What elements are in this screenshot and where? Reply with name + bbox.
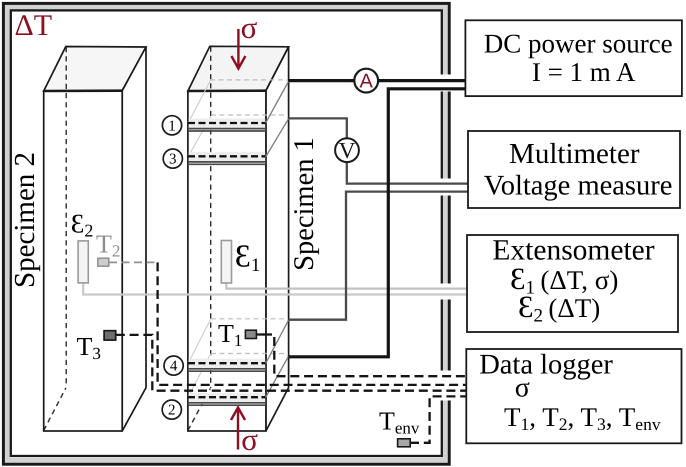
svg-text:2: 2 <box>168 403 176 419</box>
svg-text:Specimen 1: Specimen 1 <box>289 137 320 271</box>
svg-text:Tenv: Tenv <box>379 407 420 438</box>
svg-text:V: V <box>339 138 356 163</box>
svg-text:4: 4 <box>170 359 178 375</box>
svg-text:σ: σ <box>241 10 258 45</box>
svg-text:1: 1 <box>168 118 176 134</box>
svg-text:DC power source: DC power source <box>484 28 673 58</box>
svg-text:Multimeter: Multimeter <box>509 138 640 170</box>
svg-text:A: A <box>360 71 374 93</box>
svg-text:ΔT: ΔT <box>15 9 53 42</box>
svg-text:σ: σ <box>241 422 258 457</box>
svg-text:Voltage measure: Voltage measure <box>484 171 673 202</box>
svg-text:Specimen 2: Specimen 2 <box>9 152 41 288</box>
svg-text:Data logger: Data logger <box>479 350 613 381</box>
svg-text:3: 3 <box>169 152 177 168</box>
svg-text:I = 1 m A: I = 1 m A <box>532 57 636 87</box>
svg-text:Ɛ2 (ΔT): Ɛ2 (ΔT) <box>518 289 600 327</box>
svg-text:σ: σ <box>515 372 530 403</box>
